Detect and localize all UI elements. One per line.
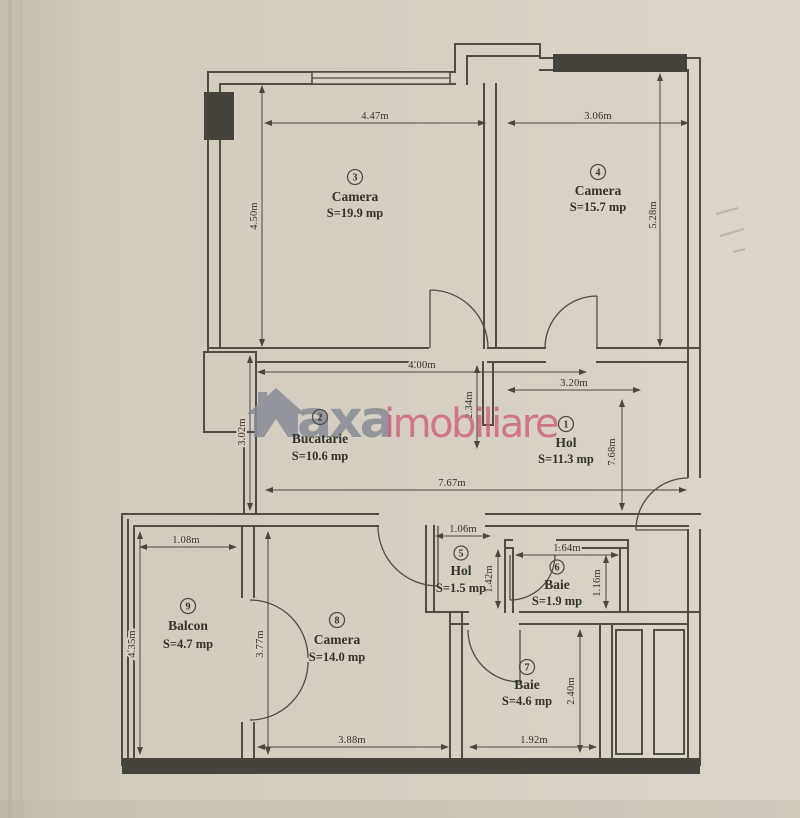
room-number: 8 bbox=[335, 616, 340, 627]
window-room4 bbox=[553, 54, 687, 72]
room-number: 1 bbox=[564, 420, 569, 431]
room-area: S=1.9 mp bbox=[532, 594, 582, 608]
room-area: S=19.9 mp bbox=[327, 206, 383, 220]
room-number: 6 bbox=[555, 563, 560, 574]
room-name: Hol bbox=[450, 563, 471, 578]
room-number: 3 bbox=[353, 173, 358, 184]
room-number: 9 bbox=[186, 602, 191, 613]
dim-label: 2.40m bbox=[566, 677, 577, 705]
floor-plan-drawing: 4.47m 3.06m 4.50m 5.28m 4.00m 3.20m 3.02… bbox=[0, 0, 800, 818]
dim-label: 3.88m bbox=[338, 735, 366, 746]
wall-pillar bbox=[204, 92, 234, 140]
dim-label: 1.06m bbox=[449, 524, 477, 535]
dim-label: 4.35m bbox=[127, 630, 138, 658]
room-area: S=11.3 mp bbox=[538, 452, 594, 466]
room-area: S=1.5 mp bbox=[436, 581, 486, 595]
room-area: S=10.6 mp bbox=[292, 449, 348, 463]
dim-label: 1.08m bbox=[172, 535, 200, 546]
dim-label: 3.77m bbox=[255, 630, 266, 658]
dim-label: 4.50m bbox=[249, 202, 260, 230]
room-name: Hol bbox=[555, 435, 576, 450]
room-name: Camera bbox=[575, 183, 622, 198]
dim-label: 1.92m bbox=[520, 735, 548, 746]
room-area: S=4.6 mp bbox=[502, 694, 552, 708]
dim-label: 4.00m bbox=[408, 360, 436, 371]
dim-label: 3.06m bbox=[584, 111, 612, 122]
room-area: S=15.7 mp bbox=[570, 200, 626, 214]
room-area: S=14.0 mp bbox=[309, 650, 365, 664]
room-name: Baie bbox=[544, 577, 570, 592]
room-name: Camera bbox=[314, 632, 361, 647]
room-area: S=4.7 mp bbox=[163, 637, 213, 651]
dim-label: 1.64m bbox=[553, 543, 581, 554]
room-number: 5 bbox=[459, 549, 464, 560]
watermark-text-imobiliare: imobiliare bbox=[384, 401, 558, 447]
dim-label: 3.20m bbox=[560, 378, 588, 389]
room-number: 4 bbox=[596, 168, 601, 179]
dim-label: 5.28m bbox=[648, 201, 659, 229]
room-name: Bucatarie bbox=[292, 431, 348, 446]
dim-label: 7.67m bbox=[438, 478, 466, 489]
scanned-floor-plan: 4.47m 3.06m 4.50m 5.28m 4.00m 3.20m 3.02… bbox=[0, 0, 800, 818]
bottom-exterior-wall bbox=[122, 758, 700, 774]
room-number: 2 bbox=[318, 413, 323, 424]
room-number: 7 bbox=[525, 663, 530, 674]
room-name: Camera bbox=[332, 189, 379, 204]
dim-label: 1.16m bbox=[592, 569, 603, 597]
dim-label: 7.68m bbox=[607, 438, 618, 466]
room-name: Baie bbox=[514, 677, 540, 692]
room-name: Balcon bbox=[168, 618, 208, 633]
dim-label: 3.02m bbox=[237, 418, 248, 446]
dim-label: 4.47m bbox=[361, 111, 389, 122]
